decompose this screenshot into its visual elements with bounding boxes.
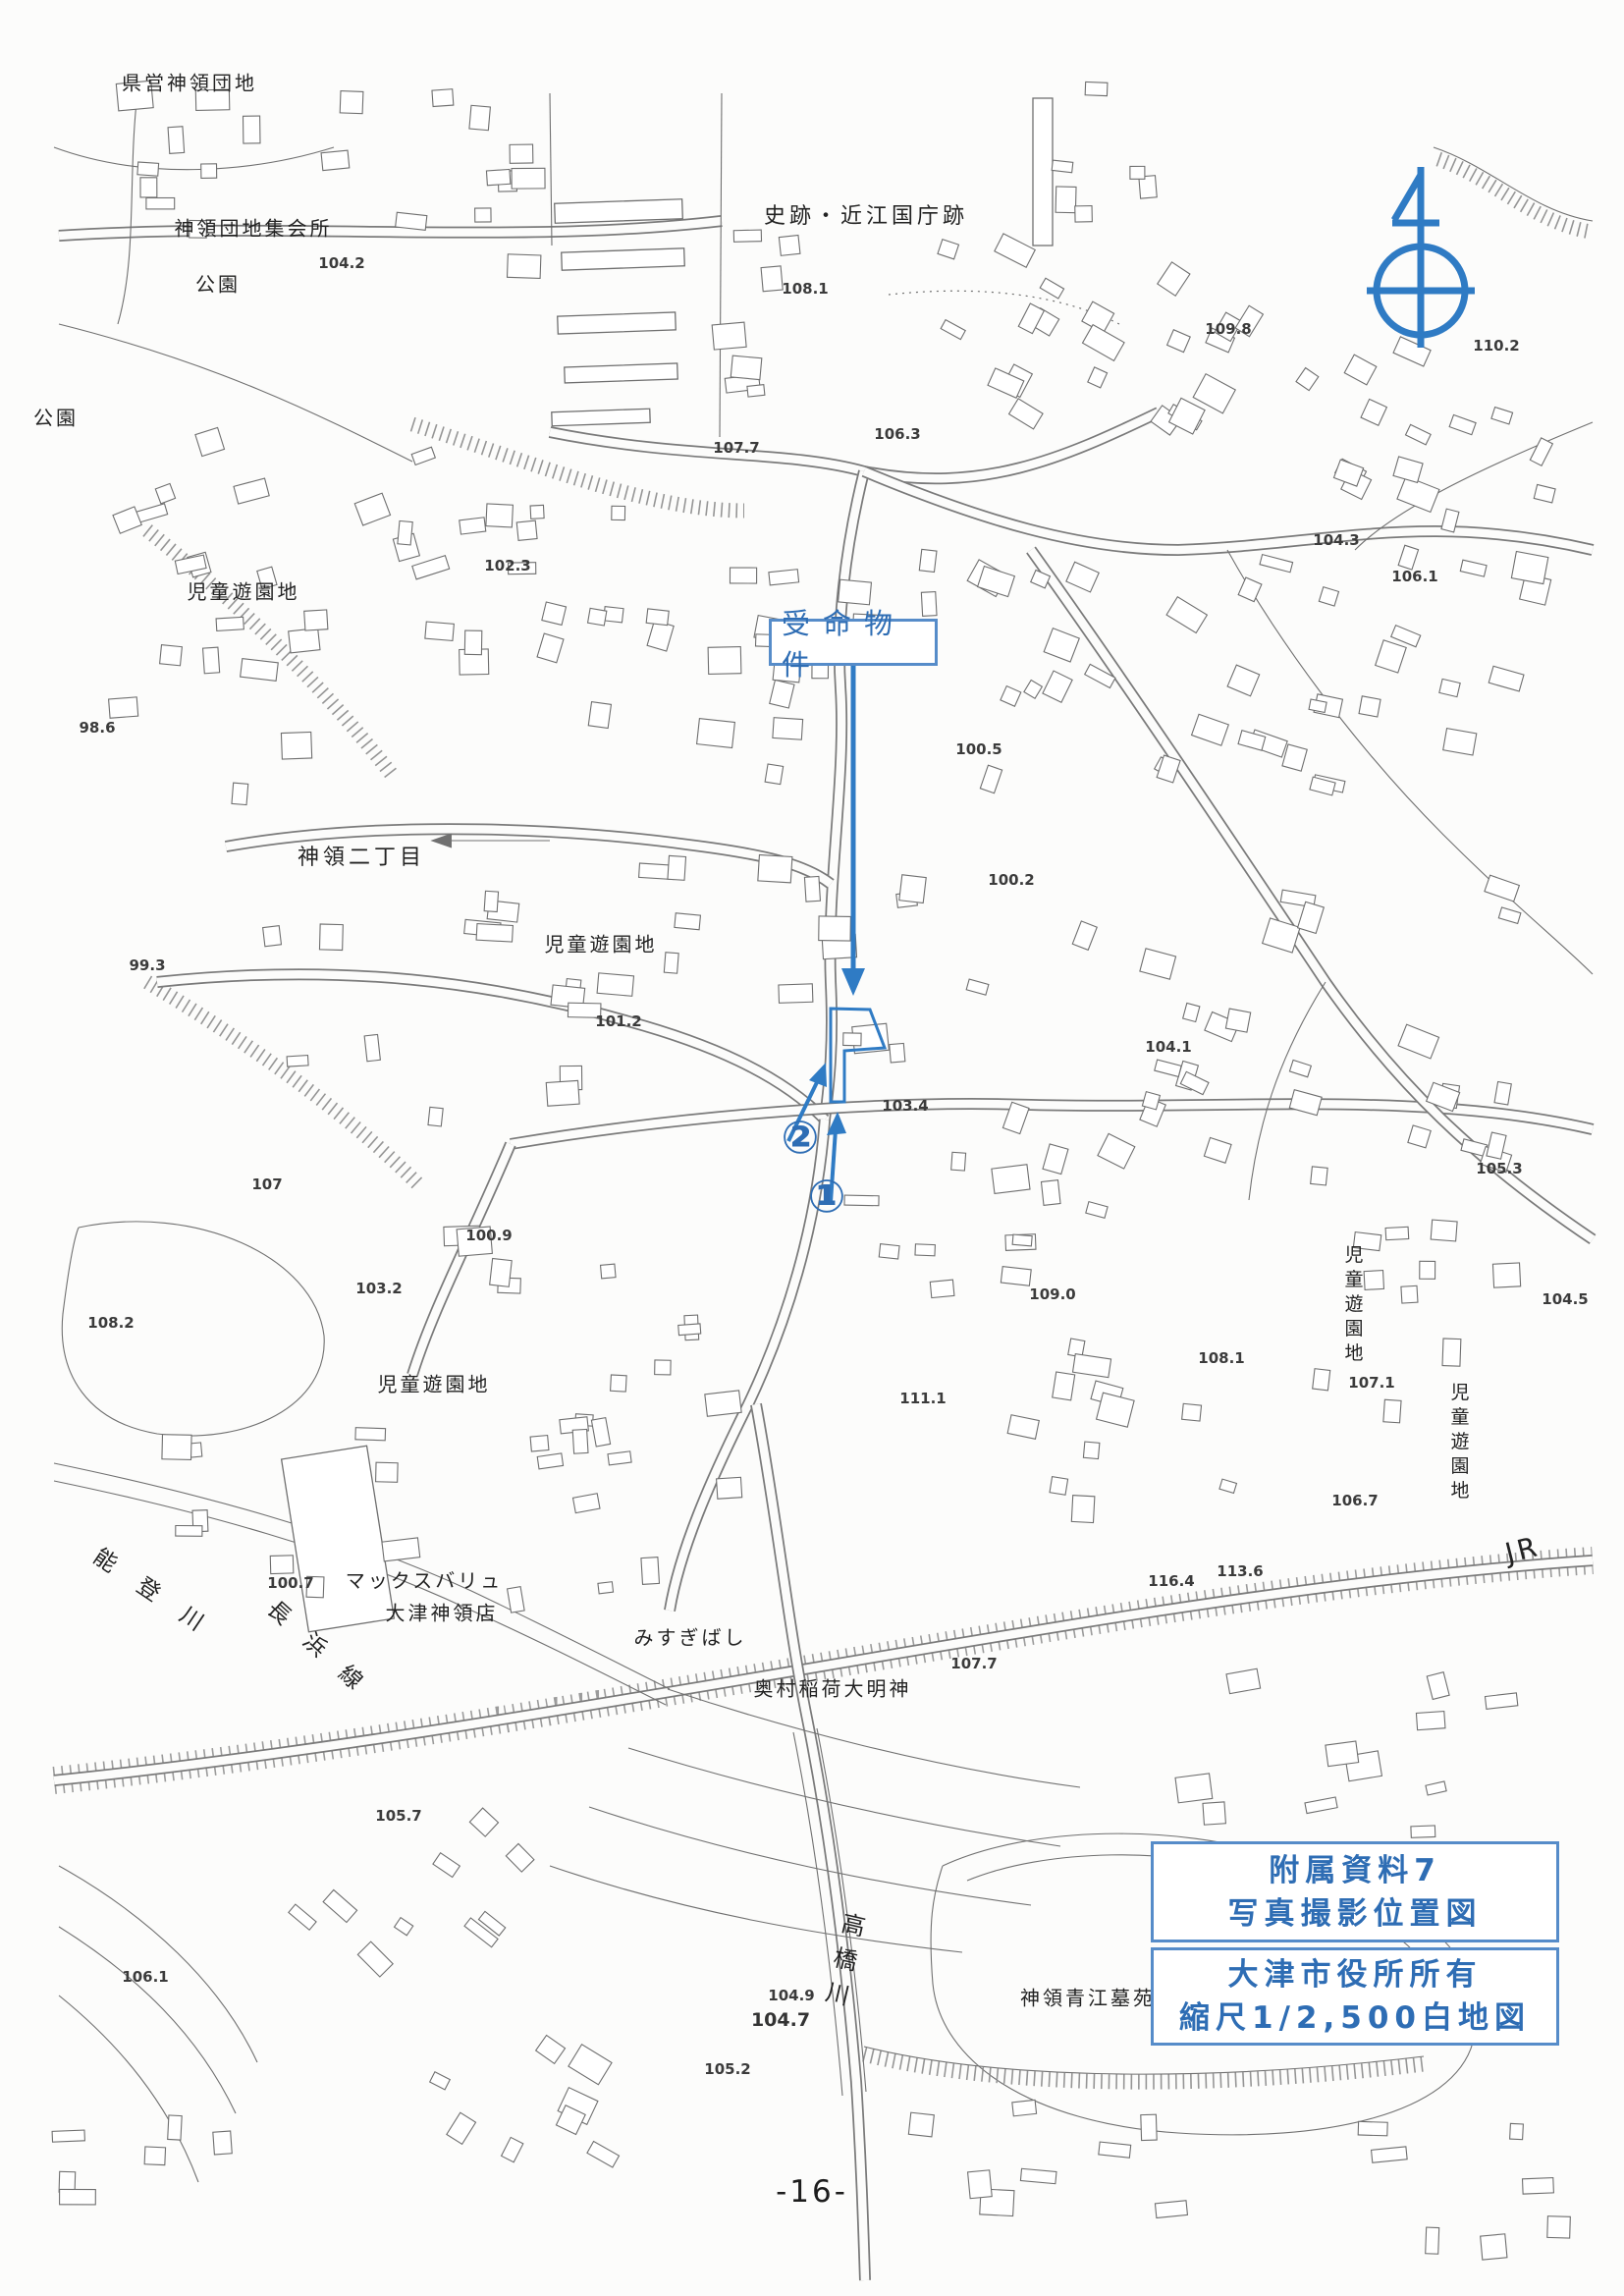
- scanned-map-page: 県営神領団地 神領団地集会所 公園 公園 史跡・近江国庁跡 104.2 108.…: [0, 0, 1624, 2296]
- spot-elevation: 113.6: [1217, 1562, 1263, 1580]
- spot-elevation: 105.3: [1476, 1160, 1522, 1177]
- map-label: 公園: [33, 403, 79, 431]
- spot-elevation: 106.1: [1391, 568, 1437, 585]
- north-compass-icon: [1367, 167, 1475, 348]
- map-title-line1: 附属資料7: [1269, 1849, 1441, 1892]
- spot-elevation: 107.7: [950, 1655, 997, 1672]
- spot-elevation: 103.4: [882, 1097, 928, 1115]
- spot-elevation: 105.2: [704, 2060, 750, 2078]
- river-name-label: 高橋川: [814, 1908, 871, 2019]
- cemetery-name-label: 神領青江墓苑: [1020, 1983, 1156, 2011]
- spot-elevation: 111.1: [899, 1390, 946, 1407]
- spot-elevation: 106.7: [1331, 1492, 1378, 1509]
- map-label: 児童遊園地: [1340, 1245, 1367, 1368]
- map-title-line2: 写真撮影位置図: [1228, 1892, 1483, 1936]
- spot-elevation: 106.1: [122, 1968, 168, 1986]
- spot-elevation: 108.2: [87, 1314, 134, 1332]
- map-label: 公園: [195, 269, 241, 298]
- spot-elevation: 110.2: [1473, 337, 1519, 355]
- spot-elevation: 106.3: [874, 425, 920, 443]
- railway-label: JR: [1502, 1530, 1544, 1570]
- spot-elevation: 100.5: [955, 740, 1001, 758]
- map-label: 神領団地集会所: [175, 213, 333, 242]
- river-name-label: 能登川: [88, 1538, 237, 1653]
- spot-elevation: 108.1: [782, 280, 828, 298]
- spot-elevation: 100.7: [267, 1574, 313, 1592]
- spot-elevation: 103.2: [355, 1280, 402, 1297]
- spot-elevation: 116.4: [1148, 1572, 1194, 1590]
- spot-elevation: 101.2: [595, 1012, 641, 1030]
- spot-elevation: 104.2: [318, 254, 364, 272]
- map-label: 県営神領団地: [122, 68, 257, 96]
- map-source-line1: 大津市役所所有: [1228, 1953, 1483, 1996]
- map-source-line2: 縮尺1/2,500白地図: [1179, 1996, 1531, 2040]
- map-label: 児童遊園地: [378, 1369, 491, 1397]
- spot-elevation: 99.3: [129, 957, 165, 974]
- map-label: 児童遊園地: [188, 576, 300, 605]
- subject-parcel-outline: [831, 1009, 885, 1102]
- shrine-name-label: 奥村稲荷大明神: [754, 1673, 912, 1702]
- map-label: マックスバリュ: [346, 1565, 503, 1594]
- map-label: 神領二丁目: [298, 840, 425, 871]
- spot-elevation: 102.3: [484, 557, 530, 574]
- spot-elevation: 107.7: [713, 439, 759, 457]
- spot-elevation: 104.9: [768, 1987, 814, 2004]
- spot-elevation: 98.6: [79, 719, 115, 737]
- photo-position-marker-2: ②: [782, 1111, 820, 1164]
- map-label: 児童遊園地: [1446, 1383, 1473, 1505]
- map-label: 児童遊園地: [545, 929, 658, 957]
- spot-elevation: 109.0: [1029, 1285, 1075, 1303]
- bridge-name-label: みすぎばし: [634, 1622, 747, 1651]
- spot-elevation: 107.1: [1348, 1374, 1394, 1392]
- map-source-box: 大津市役所所有 縮尺1/2,500白地図: [1151, 1947, 1559, 2046]
- spot-elevation: 104.5: [1542, 1290, 1588, 1308]
- subject-property-text: 受命物件: [782, 601, 935, 683]
- road-name-label: 長浜線: [261, 1591, 391, 1713]
- spot-elevation: 109.8: [1205, 320, 1251, 338]
- map-label: 大津神領店: [386, 1598, 499, 1626]
- page-number: -16-: [776, 2174, 848, 2210]
- spot-elevation: 104.7: [751, 2009, 810, 2031]
- spot-elevation: 104.1: [1145, 1038, 1191, 1056]
- spot-elevation: 105.7: [375, 1807, 421, 1825]
- spot-elevation: 100.9: [465, 1227, 512, 1244]
- spot-elevation: 100.2: [988, 871, 1034, 889]
- map-label: 史跡・近江国庁跡: [764, 198, 968, 230]
- spot-elevation: 104.3: [1313, 531, 1359, 549]
- spot-elevation: 107: [251, 1175, 282, 1193]
- photo-position-marker-1: ①: [808, 1170, 846, 1223]
- subject-leader-arrow: [841, 666, 865, 996]
- spot-elevation: 108.1: [1198, 1349, 1244, 1367]
- map-title-box: 附属資料7 写真撮影位置図: [1151, 1841, 1559, 1942]
- subject-property-label: 受命物件: [769, 619, 938, 666]
